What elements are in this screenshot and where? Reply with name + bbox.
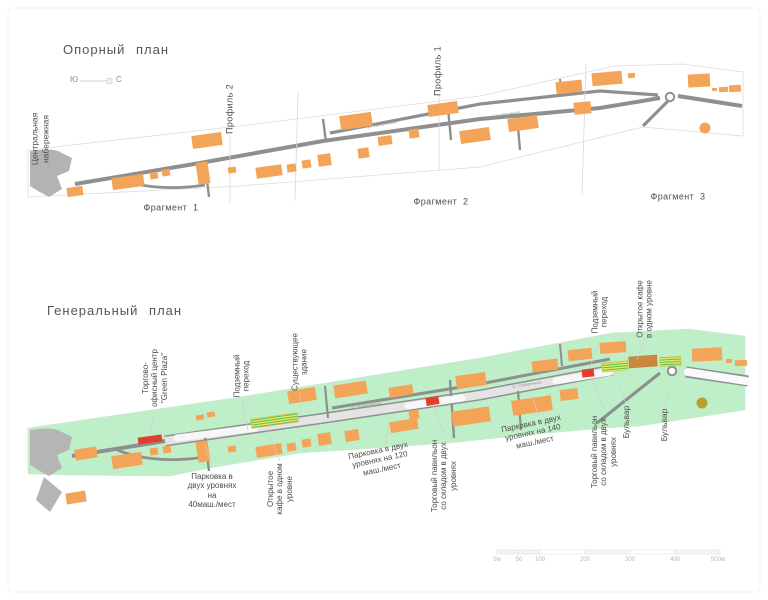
callout-existing-building: Существующее здание bbox=[291, 333, 310, 391]
embankment-pier bbox=[36, 477, 62, 512]
roundabout-island bbox=[666, 93, 674, 101]
fragment-1-label: Фрагмент 1 bbox=[144, 203, 199, 214]
callout-underground-crossing-left: Подземный переход bbox=[233, 355, 252, 398]
landscape-circle bbox=[697, 398, 708, 409]
scale-tick-0: 0м bbox=[493, 557, 500, 564]
callout-boulevard-2: Бульвар bbox=[659, 409, 669, 442]
master-plan-title: Генеральный план bbox=[47, 303, 182, 318]
drawing-sheet: Опорный план Ю С Центральная набережная … bbox=[0, 0, 768, 600]
callout-trade-pavilion-left: Торговый павильон со складом в двух уров… bbox=[430, 440, 458, 512]
compass-marker bbox=[107, 79, 112, 84]
callout-boulevard-1: Бульвар bbox=[621, 406, 631, 439]
callout-underground-crossing-right: Подземный переход bbox=[591, 291, 610, 334]
compass-south-label: Ю bbox=[70, 75, 78, 84]
scale-bar bbox=[497, 550, 720, 554]
fragment-2-label: Фрагмент 2 bbox=[414, 197, 469, 208]
scale-tick-50: 50 bbox=[516, 557, 523, 564]
reference-plan-title: Опорный план bbox=[63, 42, 169, 57]
scale-tick-200: 200 bbox=[580, 557, 590, 564]
callout-open-cafe-right: Открытое кафе в одном уровне bbox=[636, 280, 655, 338]
scale-tick-100: 100 bbox=[535, 557, 545, 564]
roundabout-island bbox=[668, 367, 676, 375]
callout-parking-40: Парковка в двух уровнях на 40маш./мест bbox=[188, 472, 237, 510]
scale-tick-400: 400 bbox=[670, 557, 680, 564]
scale-tick-300: 300 bbox=[625, 557, 635, 564]
callout-green-plaza: Торгово- офисный центр "Green Plaza" bbox=[141, 349, 169, 407]
reference-plan-map bbox=[28, 64, 743, 203]
embankment-label: Центральная набережная bbox=[30, 113, 53, 165]
profile-1-label: Профиль 1 bbox=[433, 46, 444, 96]
callout-trade-pavilion-right: Торговый павильон со складом в двух уров… bbox=[590, 416, 618, 488]
compass-north-label: С bbox=[116, 75, 122, 84]
master-plan-map bbox=[28, 329, 748, 512]
profile-2-label: Профиль 2 bbox=[225, 84, 236, 134]
callout-open-cafe-left: Открытое кафе в одном уровне bbox=[266, 463, 294, 514]
open-cafe-building bbox=[629, 355, 658, 368]
scale-tick-500: 500м bbox=[711, 557, 725, 564]
fragment-3-label: Фрагмент 3 bbox=[651, 192, 706, 203]
